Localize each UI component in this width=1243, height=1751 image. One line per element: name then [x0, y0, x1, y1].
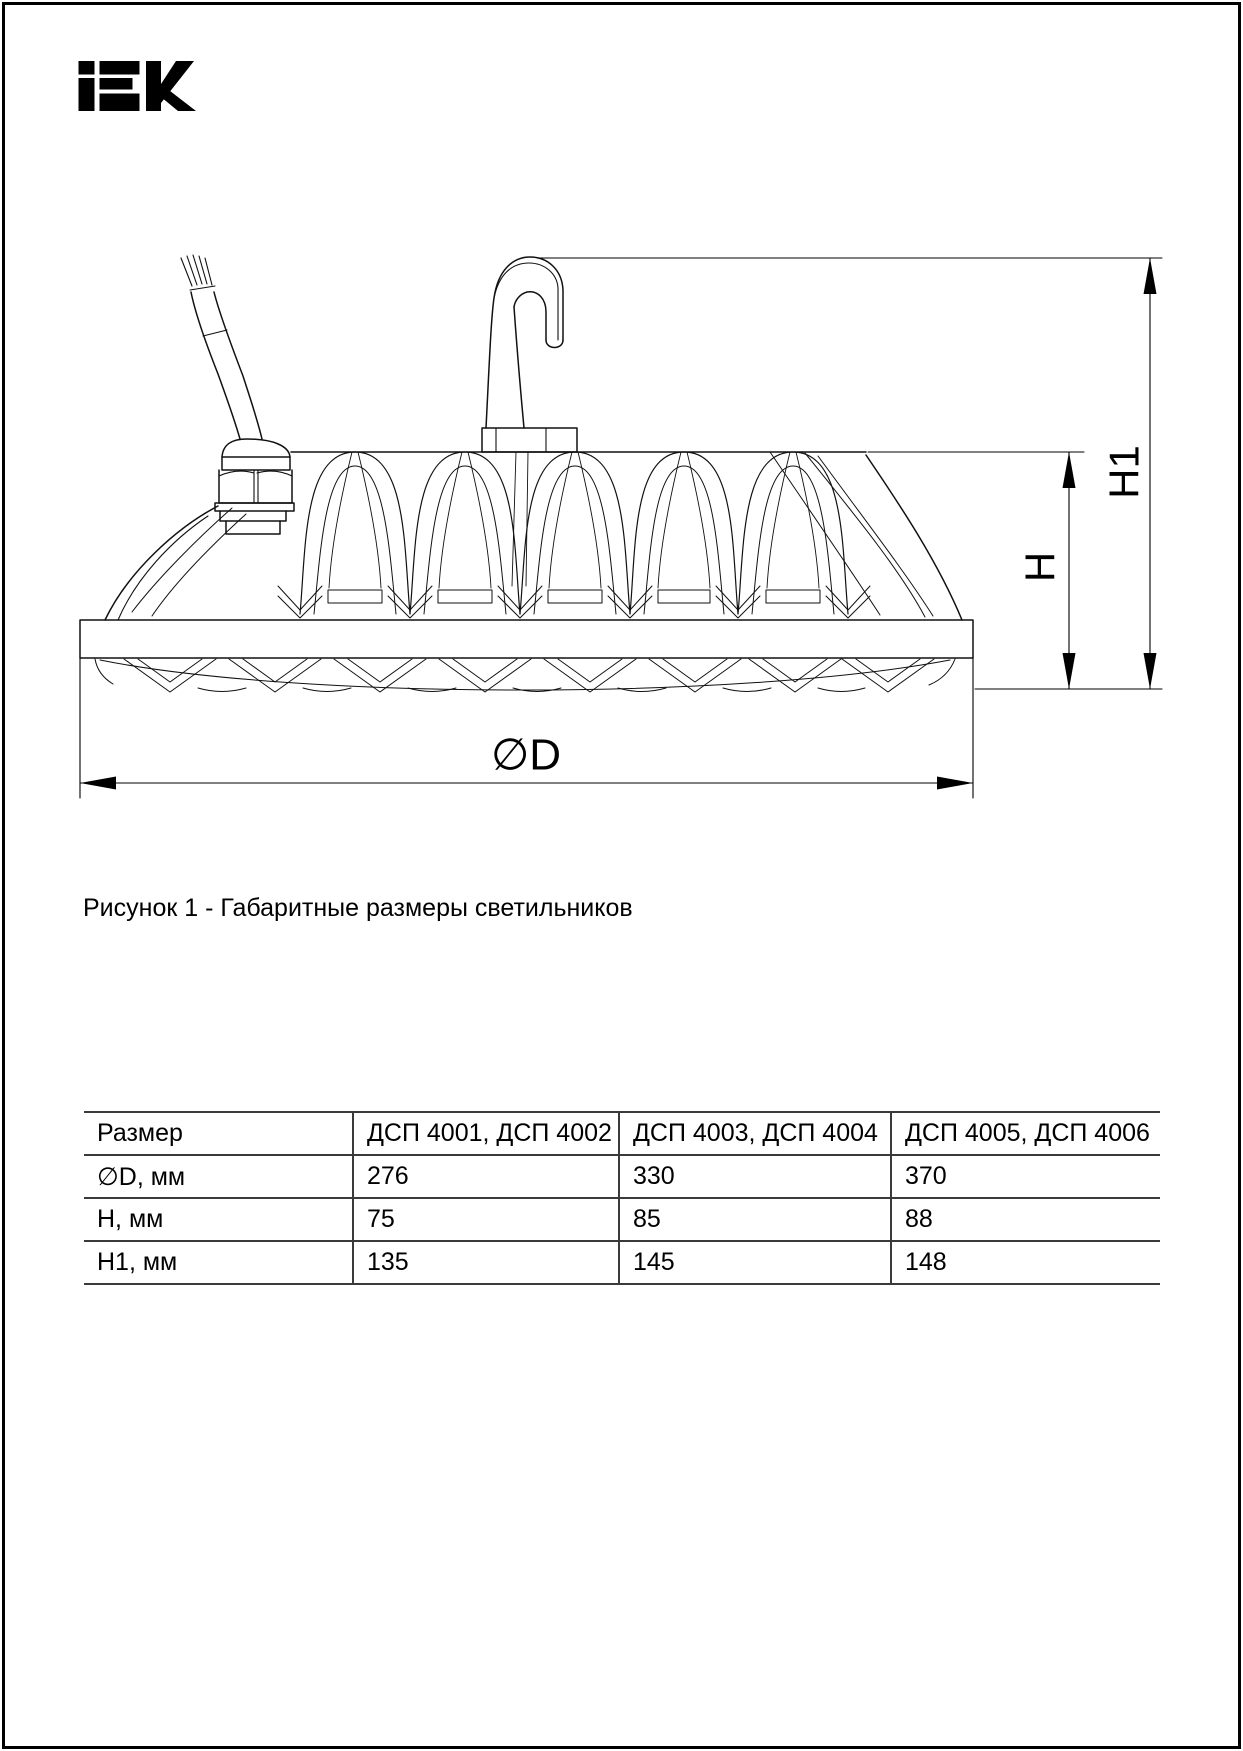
header-cell-model: ДСП 4001, ДСП 4002	[353, 1112, 619, 1155]
header-cell-size: Размер	[84, 1112, 353, 1155]
value-cell: 276	[353, 1155, 619, 1198]
table-row: H1, мм135145148	[84, 1241, 1160, 1284]
cable-gland	[215, 439, 294, 534]
row-label-cell: H, мм	[84, 1198, 353, 1241]
value-cell: 88	[891, 1198, 1160, 1241]
value-cell: 85	[619, 1198, 891, 1241]
value-cell: 370	[891, 1155, 1160, 1198]
dim-label-h1: H1	[1101, 445, 1148, 499]
suspension-hook	[486, 257, 563, 428]
value-cell: 135	[353, 1241, 619, 1284]
logo-k-stem	[146, 61, 161, 111]
dimensions-table: РазмерДСП 4001, ДСП 4002ДСП 4003, ДСП 40…	[84, 1111, 1160, 1285]
logo-e-bottom-bar	[100, 94, 140, 112]
bottom-lattice	[95, 659, 955, 692]
table-row: ∅D, мм276330370	[84, 1155, 1160, 1198]
figure-caption: Рисунок 1 - Габаритные размеры светильни…	[83, 893, 633, 923]
header-cell-model: ДСП 4005, ДСП 4006	[891, 1112, 1160, 1155]
logo-i-dot	[79, 61, 95, 75]
table-row: H, мм758588	[84, 1198, 1160, 1241]
logo-e-top-bar	[100, 61, 140, 75]
row-label-cell: H1, мм	[84, 1241, 353, 1284]
logo-e-mid-bar	[100, 78, 133, 90]
table-header-row: РазмерДСП 4001, ДСП 4002ДСП 4003, ДСП 40…	[84, 1112, 1160, 1155]
iek-logo	[77, 61, 196, 111]
header-cell-model: ДСП 4003, ДСП 4004	[619, 1112, 891, 1155]
dimensions-table-body: РазмерДСП 4001, ДСП 4002ДСП 4003, ДСП 40…	[84, 1112, 1160, 1284]
value-cell: 145	[619, 1241, 891, 1284]
value-cell: 148	[891, 1241, 1160, 1284]
dimension-arrowheads	[80, 258, 1157, 790]
wire-strands	[181, 255, 212, 286]
iek-logo-glyphs	[79, 61, 197, 111]
dimension-lines	[80, 258, 1162, 798]
power-cable	[181, 255, 262, 439]
value-cell: 330	[619, 1155, 891, 1198]
fin-base-chevrons	[278, 586, 870, 618]
base-rim	[80, 620, 973, 658]
value-cell: 75	[353, 1198, 619, 1241]
row-label-cell: ∅D, мм	[84, 1155, 353, 1198]
dimension-drawing: H H1 ∅D	[60, 225, 1180, 815]
logo-k-lower-arm	[161, 84, 196, 111]
dim-label-h: H	[1017, 552, 1064, 582]
datasheet-page: H H1 ∅D Рисунок 1 - Габаритные размеры с…	[0, 0, 1243, 1751]
hook-mounting-block	[482, 428, 577, 452]
dim-label-d: ∅D	[491, 731, 561, 780]
logo-i-stem	[79, 78, 95, 111]
